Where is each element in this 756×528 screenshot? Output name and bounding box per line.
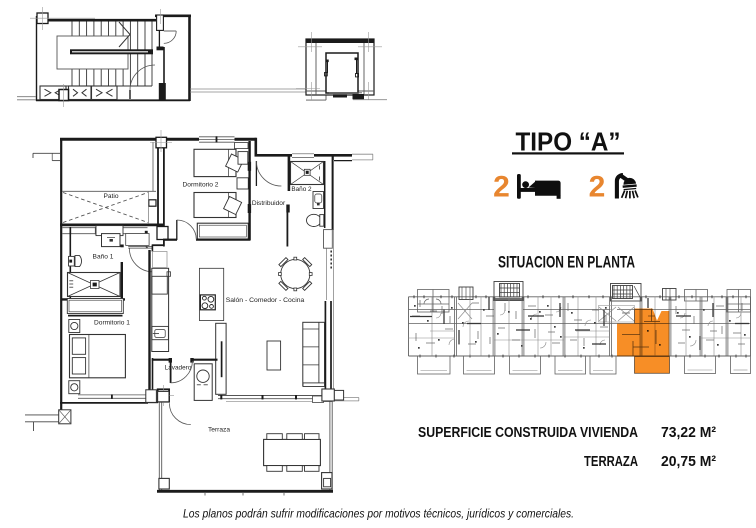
svg-text:Dormitorio 2: Dormitorio 2 — [183, 182, 219, 189]
svg-text:Dormitorio 1: Dormitorio 1 — [94, 320, 130, 327]
svg-text:Terraza: Terraza — [208, 427, 230, 434]
svg-text:Salón - Comedor - Cocina: Salón - Comedor - Cocina — [226, 297, 305, 304]
svg-text:20,75 M²: 20,75 M² — [661, 453, 716, 470]
svg-text:Los planos podrán sufrir modif: Los planos podrán sufrir modificaciones … — [183, 508, 574, 521]
svg-text:2: 2 — [589, 171, 606, 204]
svg-text:Baño 1: Baño 1 — [93, 254, 114, 261]
svg-text:73,22 M²: 73,22 M² — [661, 424, 716, 441]
svg-text:Patio: Patio — [103, 193, 118, 200]
svg-text:Baño 2: Baño 2 — [291, 186, 312, 193]
svg-text:Lavadero: Lavadero — [165, 365, 192, 372]
svg-text:SUPERFICIE CONSTRUIDA VIVIENDA: SUPERFICIE CONSTRUIDA VIVIENDA — [418, 424, 638, 441]
svg-text:2: 2 — [493, 171, 510, 204]
svg-text:TERRAZA: TERRAZA — [584, 453, 638, 470]
svg-text:SITUACION EN PLANTA: SITUACION EN PLANTA — [498, 254, 635, 272]
svg-text:Distribuidor: Distribuidor — [252, 200, 286, 207]
